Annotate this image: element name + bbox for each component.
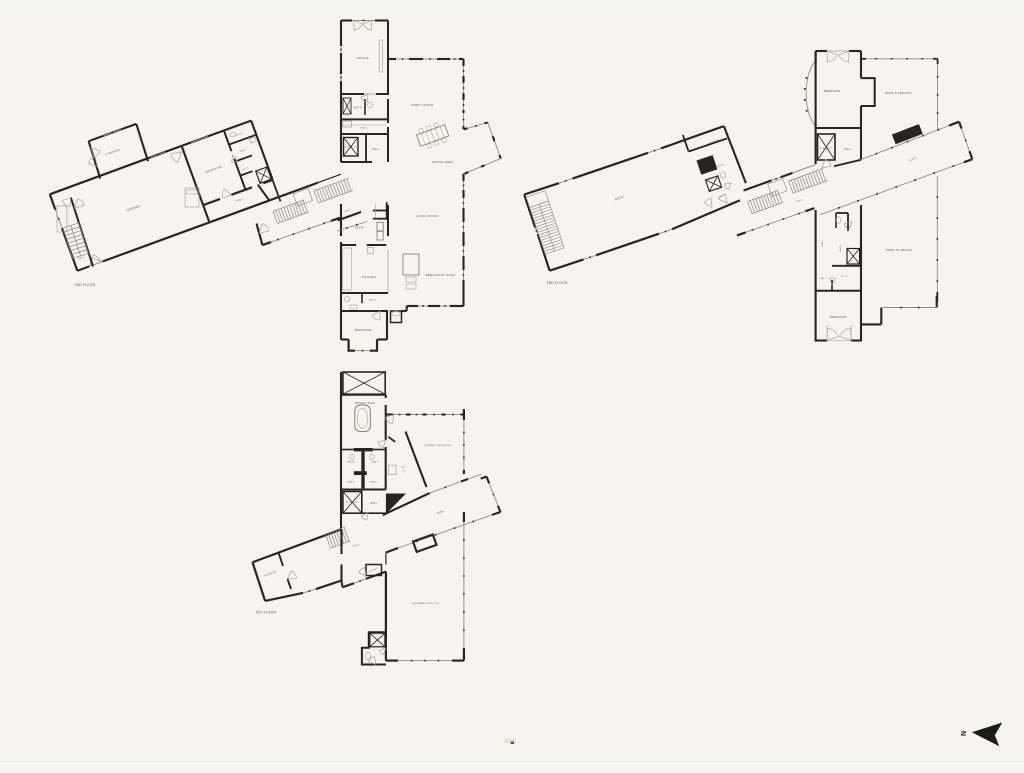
svg-text:BEDROOM: BEDROOM <box>824 89 841 93</box>
svg-text:HALL: HALL <box>370 502 378 505</box>
svg-text:FAMILY ROOM: FAMILY ROOM <box>411 103 434 107</box>
svg-text:BATH: BATH <box>348 480 355 483</box>
svg-text:HALL: HALL <box>821 239 824 246</box>
svg-text:HALL: HALL <box>372 148 380 151</box>
svg-text:BEDROOM: BEDROOM <box>355 328 372 332</box>
svg-text:RECREATION ROOM: RECREATION ROOM <box>413 602 439 605</box>
svg-text:ELEVATOR: ELEVATOR <box>346 501 359 504</box>
svg-text:PRIMARY BATH: PRIMARY BATH <box>355 402 376 405</box>
svg-text:KITCHEN: KITCHEN <box>362 275 376 279</box>
svg-text:BATH: BATH <box>372 461 379 464</box>
svg-text:BATH: BATH <box>354 107 362 110</box>
svg-text:DINING AREA: DINING AREA <box>432 160 453 164</box>
svg-text:2ND FLOOR: 2ND FLOOR <box>75 283 96 287</box>
svg-text:1ST FLOOR: 1ST FLOOR <box>256 611 277 615</box>
svg-text:OPEN TO BELOW: OPEN TO BELOW <box>886 248 913 252</box>
svg-text:3RD FLOOR: 3RD FLOOR <box>547 281 568 285</box>
svg-text:PRIMARY BEDROOM: PRIMARY BEDROOM <box>425 444 451 447</box>
svg-text:BREAKFAST NOOK: BREAKFAST NOOK <box>426 273 456 277</box>
svg-text:BATH: BATH <box>369 299 376 302</box>
svg-text:W.I.C.: W.I.C. <box>841 276 849 278</box>
svg-text:BATH: BATH <box>839 245 842 252</box>
svg-text:HALL: HALL <box>361 127 368 130</box>
svg-text:HALL: HALL <box>844 148 852 151</box>
svg-text:OPEN TO BELOW: OPEN TO BELOW <box>885 91 912 95</box>
svg-text:HALL: HALL <box>820 277 827 280</box>
svg-text:ELEVATOR: ELEVATOR <box>345 146 357 149</box>
svg-text:N: N <box>961 731 968 736</box>
svg-text:BATH: BATH <box>347 461 354 464</box>
svg-text:BATH: BATH <box>370 480 377 483</box>
svg-text:ENTRY: ENTRY <box>355 227 365 230</box>
svg-text:ELEVATOR: ELEVATOR <box>820 147 833 150</box>
svg-text:BEDROOM: BEDROOM <box>830 315 847 319</box>
svg-text:LIVING ROOM: LIVING ROOM <box>416 214 438 218</box>
svg-text:OFFICE: OFFICE <box>357 56 369 60</box>
